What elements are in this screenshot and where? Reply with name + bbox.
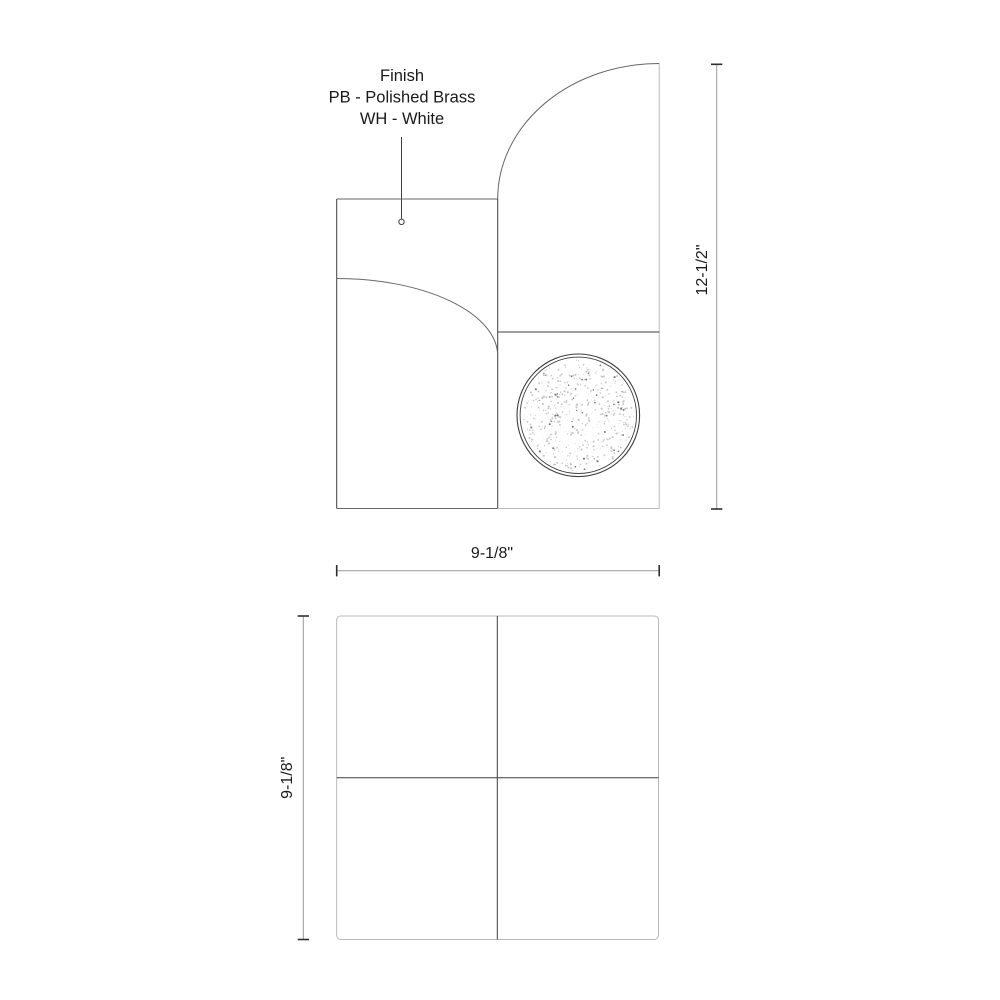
- stipple-dot: [629, 428, 630, 429]
- stipple-dot: [555, 408, 556, 409]
- stipple-dot: [616, 375, 618, 377]
- stipple-dot: [569, 452, 571, 454]
- stipple-dot: [584, 385, 586, 387]
- stipple-dot: [585, 463, 587, 465]
- stipple-dot: [538, 391, 540, 393]
- depth-dimension-label: 9-1/8": [279, 757, 296, 799]
- stipple-dot: [554, 405, 555, 406]
- stipple-dot: [615, 391, 617, 393]
- stipple-dot: [571, 375, 573, 377]
- stipple-dot: [597, 448, 598, 449]
- stipple-dot: [602, 396, 604, 398]
- stipple-dot: [548, 443, 550, 445]
- stipple-dot: [622, 384, 623, 385]
- diffuser-stipple-texture: [523, 359, 634, 470]
- stipple-dot: [543, 374, 545, 376]
- stipple-dot: [598, 421, 599, 422]
- stipple-dot: [526, 421, 528, 423]
- stipple-dot: [578, 374, 579, 375]
- stipple-dot: [591, 390, 592, 391]
- stipple-dot: [557, 380, 559, 382]
- stipple-dot: [614, 381, 616, 383]
- stipple-dot: [576, 403, 578, 405]
- stipple-dot: [597, 424, 598, 425]
- stipple-dot: [569, 413, 570, 414]
- stipple-dot: [568, 381, 569, 382]
- height-dimension-label: 12-1/2": [694, 244, 711, 295]
- technical-drawing-canvas: Finish PB - Polished Brass WH - White: [0, 0, 1000, 1000]
- stipple-dot: [590, 382, 591, 383]
- stipple-dot: [545, 396, 547, 398]
- stipple-dot: [581, 410, 582, 411]
- stipple-dot: [582, 430, 583, 431]
- stipple-dot: [556, 448, 557, 449]
- spec-sheet: Finish PB - Polished Brass WH - White: [0, 0, 1000, 1000]
- stipple-dot: [616, 451, 617, 452]
- stipple-dot: [597, 439, 599, 441]
- stipple-dot: [565, 418, 566, 419]
- stipple-dot: [535, 415, 536, 416]
- stipple-dot: [568, 444, 569, 445]
- stipple-dot: [565, 466, 566, 467]
- stipple-dot: [607, 406, 608, 407]
- stipple-dot: [567, 465, 569, 467]
- stipple-dot: [604, 423, 606, 425]
- stipple-dot: [612, 410, 613, 411]
- stipple-dot: [577, 432, 579, 434]
- stipple-dot: [620, 446, 622, 448]
- stipple-dot: [606, 389, 608, 391]
- stipple-dot: [585, 415, 587, 417]
- stipple-dot: [546, 452, 547, 453]
- stipple-dot: [598, 403, 600, 405]
- stipple-dot: [614, 426, 616, 428]
- stipple-dot: [552, 378, 554, 380]
- stipple-dot: [598, 427, 599, 428]
- stipple-dot: [593, 442, 594, 443]
- stipple-dot: [546, 438, 548, 440]
- stipple-dot: [625, 422, 627, 424]
- stipple-dot: [567, 466, 569, 468]
- stipple-dot: [619, 379, 620, 380]
- stipple-dot: [567, 463, 568, 464]
- stipple-dot: [557, 402, 558, 403]
- stipple-dot: [595, 385, 596, 386]
- stipple-dot: [560, 428, 561, 429]
- stipple-dot: [543, 455, 545, 457]
- stipple-dot: [578, 445, 579, 446]
- stipple-dot: [633, 416, 634, 417]
- stipple-dot: [585, 424, 587, 426]
- stipple-dot: [586, 367, 587, 368]
- stipple-dot: [588, 369, 589, 370]
- stipple-dot: [604, 431, 606, 433]
- stipple-dot: [615, 405, 616, 406]
- stipple-dot: [622, 434, 624, 436]
- stipple-dot: [577, 459, 579, 461]
- stipple-dot: [550, 400, 552, 402]
- stipple-dot: [602, 413, 604, 415]
- stipple-dot: [537, 397, 538, 398]
- stipple-dot: [583, 458, 585, 460]
- stipple-dot: [628, 424, 629, 425]
- stipple-dot: [552, 416, 553, 417]
- stipple-dot: [566, 414, 567, 415]
- stipple-dot: [550, 439, 552, 441]
- stipple-dot: [567, 433, 568, 434]
- stipple-dot: [593, 412, 594, 413]
- stipple-dot: [572, 418, 574, 420]
- stipple-dot: [600, 448, 601, 449]
- stipple-dot: [614, 429, 616, 431]
- stipple-dot: [569, 455, 570, 456]
- stipple-dot: [556, 387, 557, 388]
- stipple-dot: [560, 380, 562, 382]
- stipple-dot: [560, 406, 561, 407]
- stipple-dot: [625, 424, 627, 426]
- stipple-dot: [584, 440, 586, 442]
- stipple-dot: [554, 450, 555, 451]
- stipple-dot: [588, 417, 590, 419]
- stipple-dot: [534, 418, 535, 419]
- stipple-dot: [557, 463, 558, 464]
- stipple-dot: [549, 436, 551, 438]
- stipple-dot: [612, 458, 614, 460]
- stipple-dot: [593, 397, 594, 398]
- stipple-dot: [620, 439, 621, 440]
- stipple-dot: [573, 375, 575, 377]
- stipple-dot: [563, 386, 564, 387]
- stipple-dot: [533, 400, 535, 402]
- stipple-dot: [562, 451, 563, 452]
- stipple-dot: [596, 371, 597, 372]
- stipple-dot: [561, 403, 563, 405]
- stipple-dot: [570, 393, 572, 395]
- stipple-dot: [542, 381, 543, 382]
- stipple-dot: [581, 411, 582, 412]
- stipple-dot: [617, 407, 619, 409]
- stipple-dot: [618, 404, 620, 406]
- stipple-dot: [575, 388, 577, 390]
- stipple-dot: [604, 421, 605, 422]
- width-dimension: 9-1/8": [337, 545, 660, 576]
- stipple-dot: [539, 410, 540, 411]
- stipple-dot: [578, 394, 579, 395]
- stipple-dot: [548, 405, 550, 407]
- stipple-dot: [533, 418, 534, 419]
- stipple-dot: [543, 373, 544, 374]
- stipple-dot: [543, 396, 545, 398]
- stipple-dot: [550, 408, 551, 409]
- annotation-line-finish: Finish: [380, 67, 424, 85]
- stipple-dot: [568, 384, 570, 386]
- stipple-dot: [582, 444, 584, 446]
- stipple-dot: [531, 439, 533, 441]
- stipple-dot: [565, 431, 566, 432]
- stipple-dot: [586, 423, 587, 424]
- stipple-dot: [571, 433, 572, 434]
- stipple-dot: [529, 429, 531, 431]
- stipple-dot: [570, 434, 572, 436]
- stipple-dot: [536, 399, 537, 400]
- stipple-dot: [581, 404, 583, 406]
- stipple-dot: [615, 376, 616, 377]
- stipple-dot: [599, 465, 600, 466]
- stipple-dot: [548, 441, 549, 442]
- stipple-dot: [623, 392, 625, 394]
- stipple-dot: [578, 365, 579, 366]
- stipple-dot: [619, 420, 620, 421]
- stipple-dot: [545, 417, 546, 418]
- stipple-dot: [593, 445, 595, 447]
- stipple-dot: [561, 373, 563, 375]
- stipple-dot: [578, 419, 580, 421]
- stipple-dot: [551, 421, 552, 422]
- stipple-dot: [541, 382, 542, 383]
- stipple-dot: [598, 433, 600, 435]
- stipple-dot: [565, 366, 567, 368]
- stipple-dot: [564, 382, 566, 384]
- stipple-dot: [574, 451, 575, 452]
- stipple-dot: [622, 430, 623, 431]
- stipple-dot: [536, 397, 537, 398]
- stipple-dot: [575, 466, 577, 468]
- stipple-dot: [523, 419, 524, 420]
- stipple-dot: [619, 413, 621, 415]
- stipple-dot: [539, 408, 540, 409]
- stipple-dot: [618, 432, 619, 433]
- stipple-dot: [623, 414, 625, 416]
- stipple-dot: [555, 430, 556, 431]
- stipple-dot: [623, 424, 625, 426]
- stipple-dot: [569, 374, 571, 376]
- stipple-dot: [626, 416, 627, 417]
- stipple-dot: [539, 450, 541, 452]
- stipple-dot: [607, 438, 609, 440]
- stipple-dot: [613, 376, 615, 378]
- stipple-dot: [584, 468, 586, 470]
- stipple-dot: [622, 403, 624, 405]
- stipple-dot: [568, 404, 569, 405]
- stipple-dot: [609, 438, 611, 440]
- stipple-dot: [559, 375, 561, 377]
- stipple-dot: [565, 391, 566, 392]
- stipple-dot: [550, 386, 551, 387]
- stipple-dot: [630, 407, 632, 409]
- stipple-dot: [565, 387, 567, 389]
- stipple-dot: [602, 384, 603, 385]
- stipple-dot: [599, 364, 601, 366]
- finish-annotation: Finish PB - Polished Brass WH - White: [329, 67, 476, 225]
- stipple-dot: [602, 445, 604, 447]
- stipple-dot: [600, 413, 601, 414]
- stipple-dot: [532, 427, 533, 428]
- stipple-dot: [544, 425, 546, 427]
- stipple-dot: [588, 375, 590, 377]
- stipple-dot: [606, 402, 607, 403]
- stipple-dot: [625, 397, 626, 398]
- stipple-dot: [529, 423, 531, 425]
- stipple-dot: [619, 395, 621, 397]
- stipple-dot: [541, 421, 543, 423]
- stipple-dot: [585, 378, 587, 380]
- stipple-dot: [605, 381, 607, 383]
- stipple-dot: [567, 455, 568, 456]
- stipple-dot: [594, 458, 595, 459]
- stipple-dot: [582, 412, 584, 414]
- stipple-dot: [605, 421, 606, 422]
- stipple-dot: [538, 382, 540, 384]
- stipple-dot: [615, 413, 616, 414]
- stipple-dot: [574, 374, 576, 376]
- stipple-dot: [596, 384, 597, 385]
- stipple-dot: [621, 396, 623, 398]
- stipple-dot: [611, 377, 612, 378]
- stipple-dot: [596, 460, 598, 462]
- stipple-dot: [554, 421, 556, 423]
- stipple-dot: [537, 448, 539, 450]
- stipple-dot: [554, 394, 556, 396]
- stipple-dot: [608, 420, 609, 421]
- stipple-dot: [531, 394, 533, 396]
- stipple-dot: [555, 417, 557, 419]
- stipple-dot: [557, 393, 559, 395]
- stipple-dot: [594, 399, 596, 401]
- stipple-dot: [621, 434, 623, 436]
- stipple-dot: [548, 437, 549, 438]
- stipple-dot: [588, 403, 589, 404]
- stipple-dot: [611, 428, 612, 429]
- stipple-dot: [609, 405, 611, 407]
- stipple-dot: [540, 428, 542, 430]
- stipple-dot: [588, 394, 589, 395]
- stipple-dot: [601, 383, 602, 384]
- stipple-dot: [610, 386, 611, 387]
- stipple-dot: [594, 440, 595, 441]
- stipple-dot: [611, 408, 612, 409]
- stipple-dot: [556, 432, 557, 433]
- stipple-dot: [588, 372, 590, 374]
- stipple-dot: [563, 405, 564, 406]
- stipple-dot: [532, 432, 534, 434]
- stipple-dot: [564, 395, 565, 396]
- stipple-dot: [572, 399, 574, 401]
- stipple-dot: [624, 416, 625, 417]
- stipple-dot: [544, 428, 545, 429]
- stipple-dot: [551, 375, 553, 377]
- stipple-dot: [621, 391, 622, 392]
- side-view: [337, 64, 660, 509]
- stipple-dot: [554, 446, 555, 447]
- stipple-dot: [552, 414, 553, 415]
- stipple-dot: [585, 434, 586, 435]
- stipple-dot: [583, 429, 584, 430]
- stipple-dot: [558, 416, 560, 418]
- stipple-dot: [584, 379, 585, 380]
- stipple-dot: [616, 395, 618, 397]
- stipple-dot: [561, 462, 563, 464]
- stipple-dot: [528, 401, 529, 402]
- annotation-line-polished-brass: PB - Polished Brass: [329, 89, 476, 107]
- stipple-dot: [530, 433, 532, 435]
- stipple-dot: [570, 385, 571, 386]
- stipple-dot: [606, 378, 607, 379]
- stipple-dot: [565, 464, 567, 466]
- stipple-dot: [611, 414, 612, 415]
- stipple-dot: [597, 389, 598, 390]
- stipple-dot: [554, 415, 556, 417]
- stipple-dot: [582, 423, 583, 424]
- stipple-dot: [608, 393, 610, 395]
- stipple-dot: [613, 379, 614, 380]
- leader-dot: [399, 219, 404, 224]
- stipple-dot: [603, 457, 604, 458]
- stipple-dot: [613, 403, 615, 405]
- stipple-dot: [579, 460, 580, 461]
- stipple-dot: [551, 425, 552, 426]
- stipple-dot: [537, 401, 538, 402]
- stipple-dot: [537, 445, 539, 447]
- stipple-dot: [620, 420, 621, 421]
- stipple-dot: [560, 391, 561, 392]
- stipple-dot: [623, 409, 625, 411]
- stipple-dot: [599, 446, 600, 447]
- stipple-dot: [615, 383, 616, 384]
- stipple-dot: [603, 439, 605, 441]
- stipple-dot: [575, 406, 576, 407]
- stipple-dot: [603, 454, 605, 456]
- stipple-dot: [594, 402, 596, 404]
- stipple-dot: [570, 388, 571, 389]
- stipple-dot: [576, 455, 577, 456]
- stipple-dot: [586, 388, 587, 389]
- stipple-dot: [596, 426, 597, 427]
- stipple-dot: [557, 421, 559, 423]
- stipple-dot: [551, 417, 553, 419]
- stipple-dot: [594, 409, 596, 411]
- stipple-dot: [546, 413, 548, 415]
- stipple-dot: [602, 387, 603, 388]
- stipple-dot: [545, 370, 546, 371]
- stipple-dot: [626, 407, 628, 409]
- stipple-dot: [575, 443, 576, 444]
- stipple-dot: [531, 406, 532, 407]
- stipple-dot: [556, 437, 557, 438]
- stipple-dot: [553, 464, 555, 466]
- stipple-dot: [538, 444, 539, 445]
- stipple-dot: [619, 401, 620, 402]
- stipple-dot: [527, 429, 528, 430]
- stipple-dot: [531, 391, 533, 393]
- stipple-dot: [572, 426, 574, 428]
- stipple-dot: [530, 426, 532, 428]
- stipple-dot: [559, 424, 561, 426]
- stipple-dot: [604, 405, 605, 406]
- stipple-dot: [618, 450, 620, 452]
- stipple-dot: [589, 378, 591, 380]
- stipple-dot: [622, 401, 624, 403]
- stipple-dot: [577, 448, 578, 449]
- stipple-dot: [533, 429, 534, 430]
- stipple-dot: [548, 412, 550, 414]
- side-view-inner-profile-arc: [337, 279, 498, 357]
- stipple-dot: [607, 411, 609, 413]
- stipple-dot: [548, 454, 549, 455]
- stipple-dot: [549, 423, 551, 425]
- side-view-top-corner-arc: [498, 64, 660, 200]
- stipple-dot: [565, 401, 567, 403]
- stipple-dot: [567, 391, 569, 393]
